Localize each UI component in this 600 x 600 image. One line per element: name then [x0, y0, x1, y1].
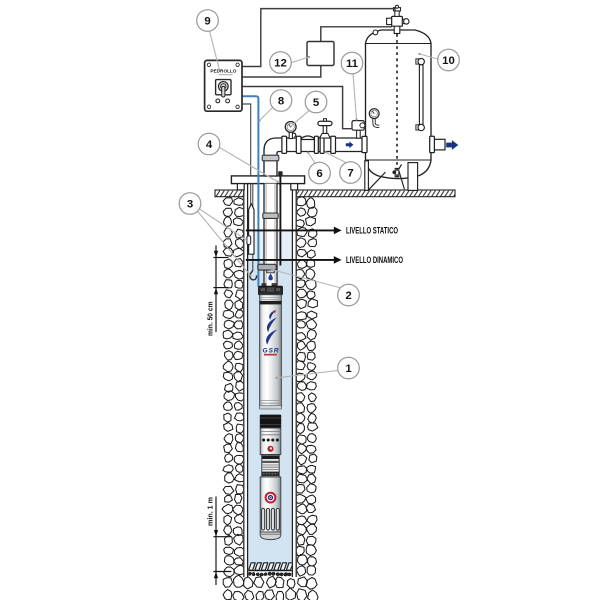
svg-text:12: 12	[274, 58, 287, 70]
svg-text:5: 5	[313, 97, 320, 109]
svg-text:2: 2	[345, 290, 351, 302]
svg-text:1: 1	[345, 363, 352, 375]
svg-text:LIVELLO DINAMICO: LIVELLO DINAMICO	[346, 255, 403, 265]
svg-text:8: 8	[278, 96, 284, 108]
svg-text:min. 1 m: min. 1 m	[206, 497, 215, 526]
svg-text:10: 10	[442, 55, 455, 67]
svg-text:3: 3	[187, 199, 193, 211]
svg-text:7: 7	[347, 168, 353, 180]
svg-text:9: 9	[204, 16, 210, 28]
svg-text:GSR: GSR	[263, 348, 279, 355]
svg-text:LIVELLO STATICO: LIVELLO STATICO	[346, 226, 398, 236]
svg-text:PEDROLLO: PEDROLLO	[210, 68, 236, 73]
svg-text:min. 50 cm: min. 50 cm	[206, 301, 215, 336]
svg-text:11: 11	[346, 58, 359, 70]
svg-text:6: 6	[316, 168, 322, 180]
svg-text:4: 4	[206, 139, 213, 151]
